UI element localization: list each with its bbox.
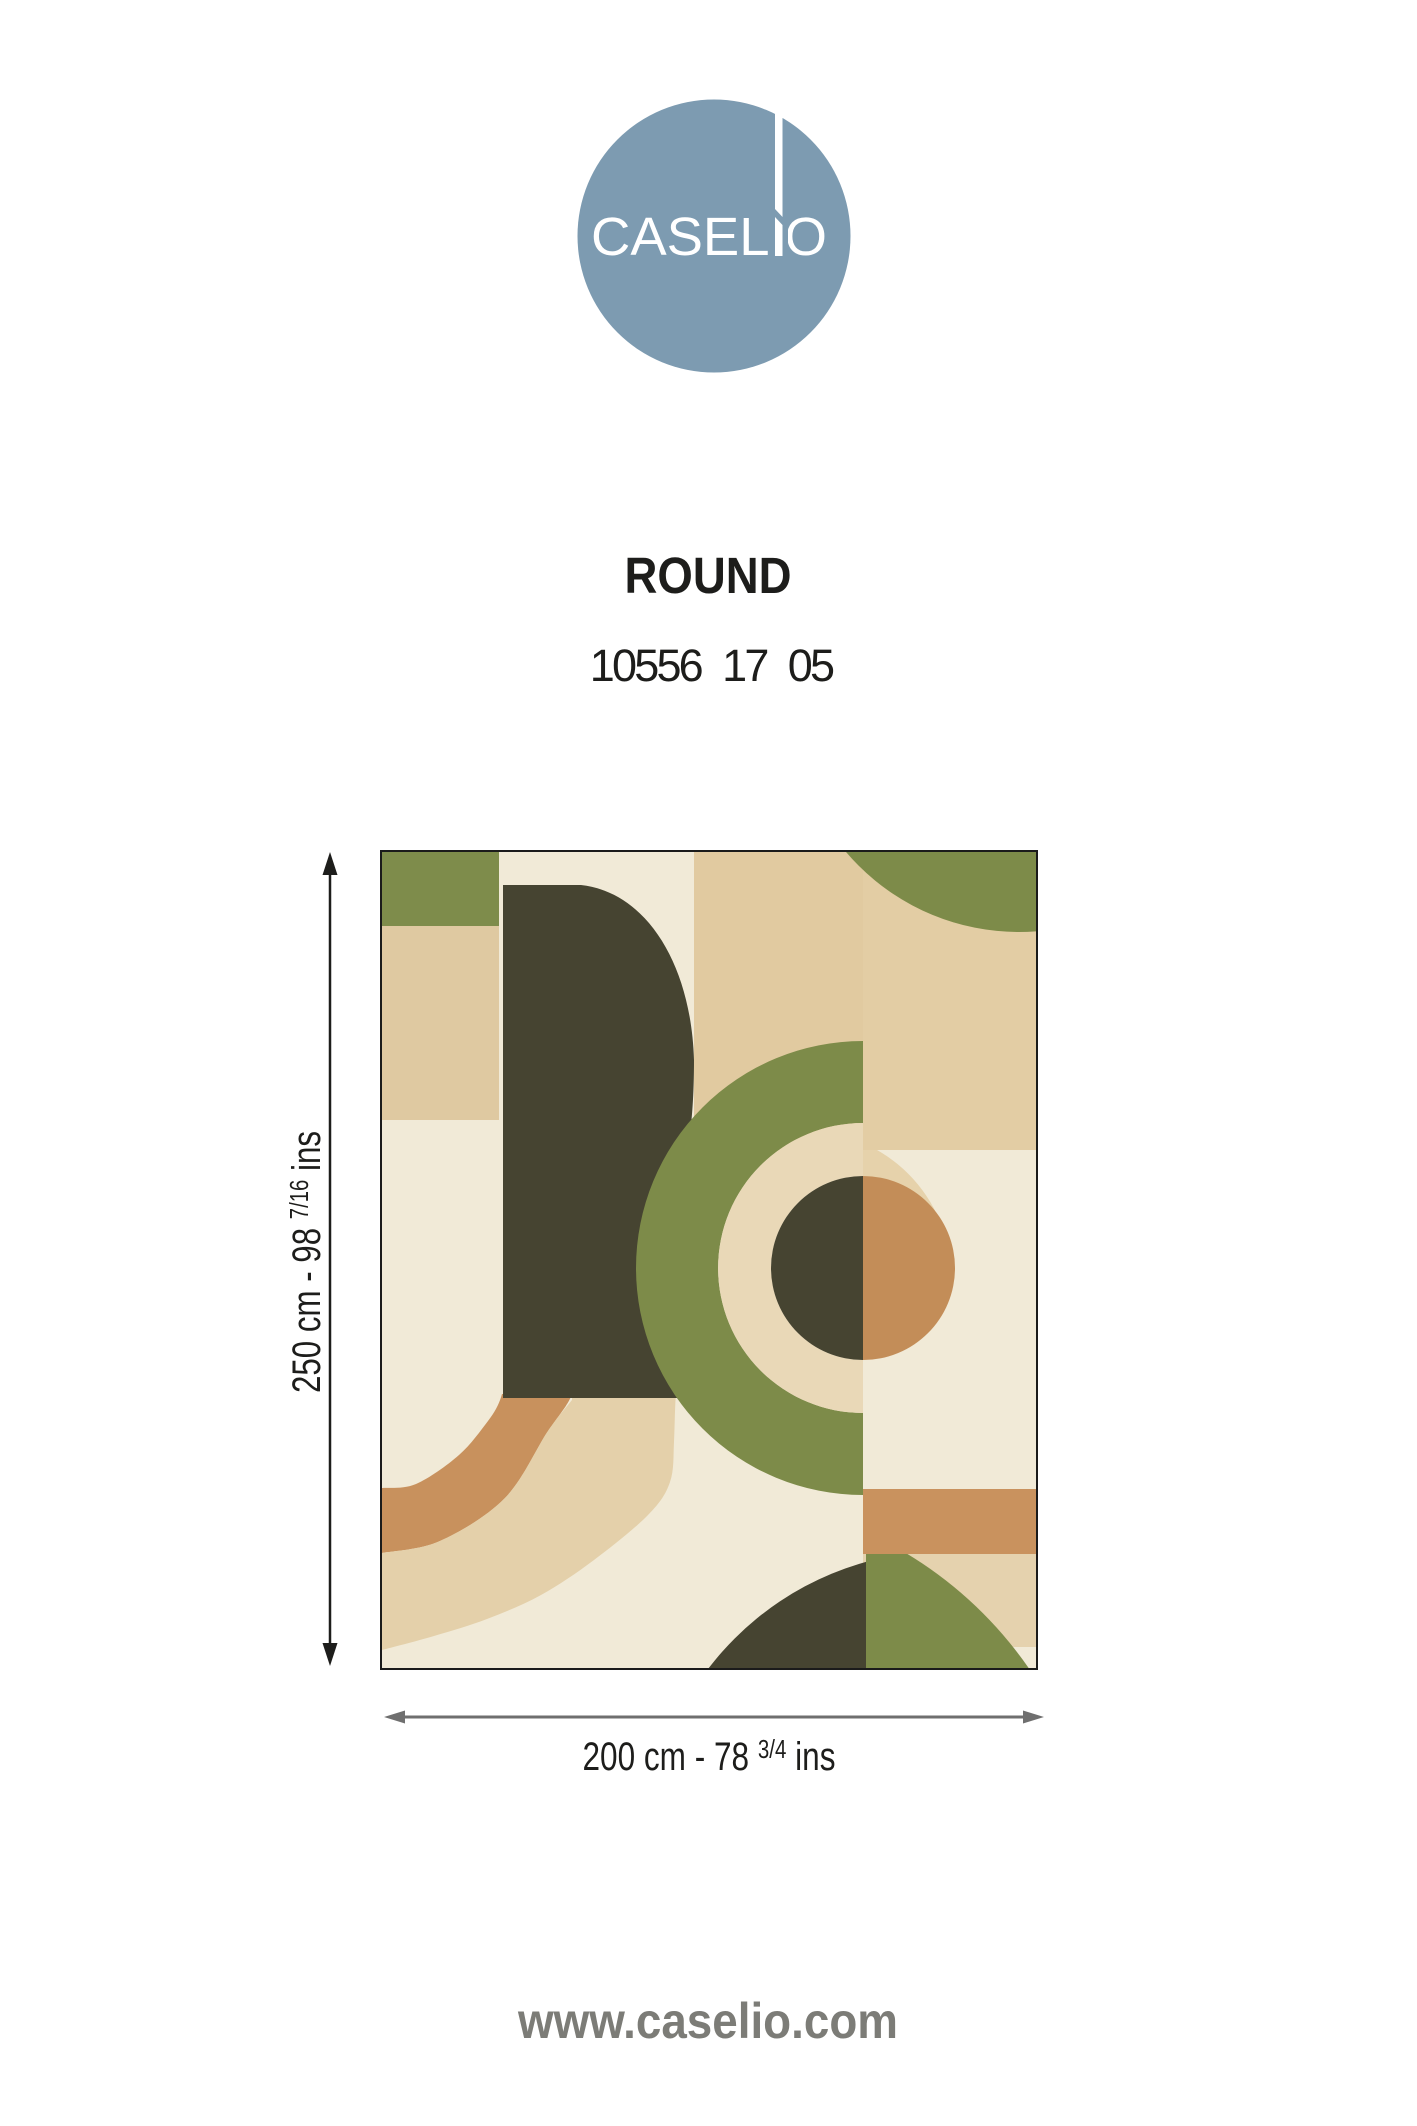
svg-text:www.caselio.com: www.caselio.com xyxy=(517,1993,898,2049)
svg-text:ROUND: ROUND xyxy=(625,547,792,604)
svg-text:250 cm - 98 7/16 ins: 250 cm - 98 7/16 ins xyxy=(273,1131,329,1393)
svg-text:CASELIO: CASELIO xyxy=(591,207,827,267)
svg-text:200 cm - 78 3/4 ins: 200 cm - 78 3/4 ins xyxy=(583,1723,836,1779)
svg-text:10556 17 05: 10556 17 05 xyxy=(590,640,834,691)
